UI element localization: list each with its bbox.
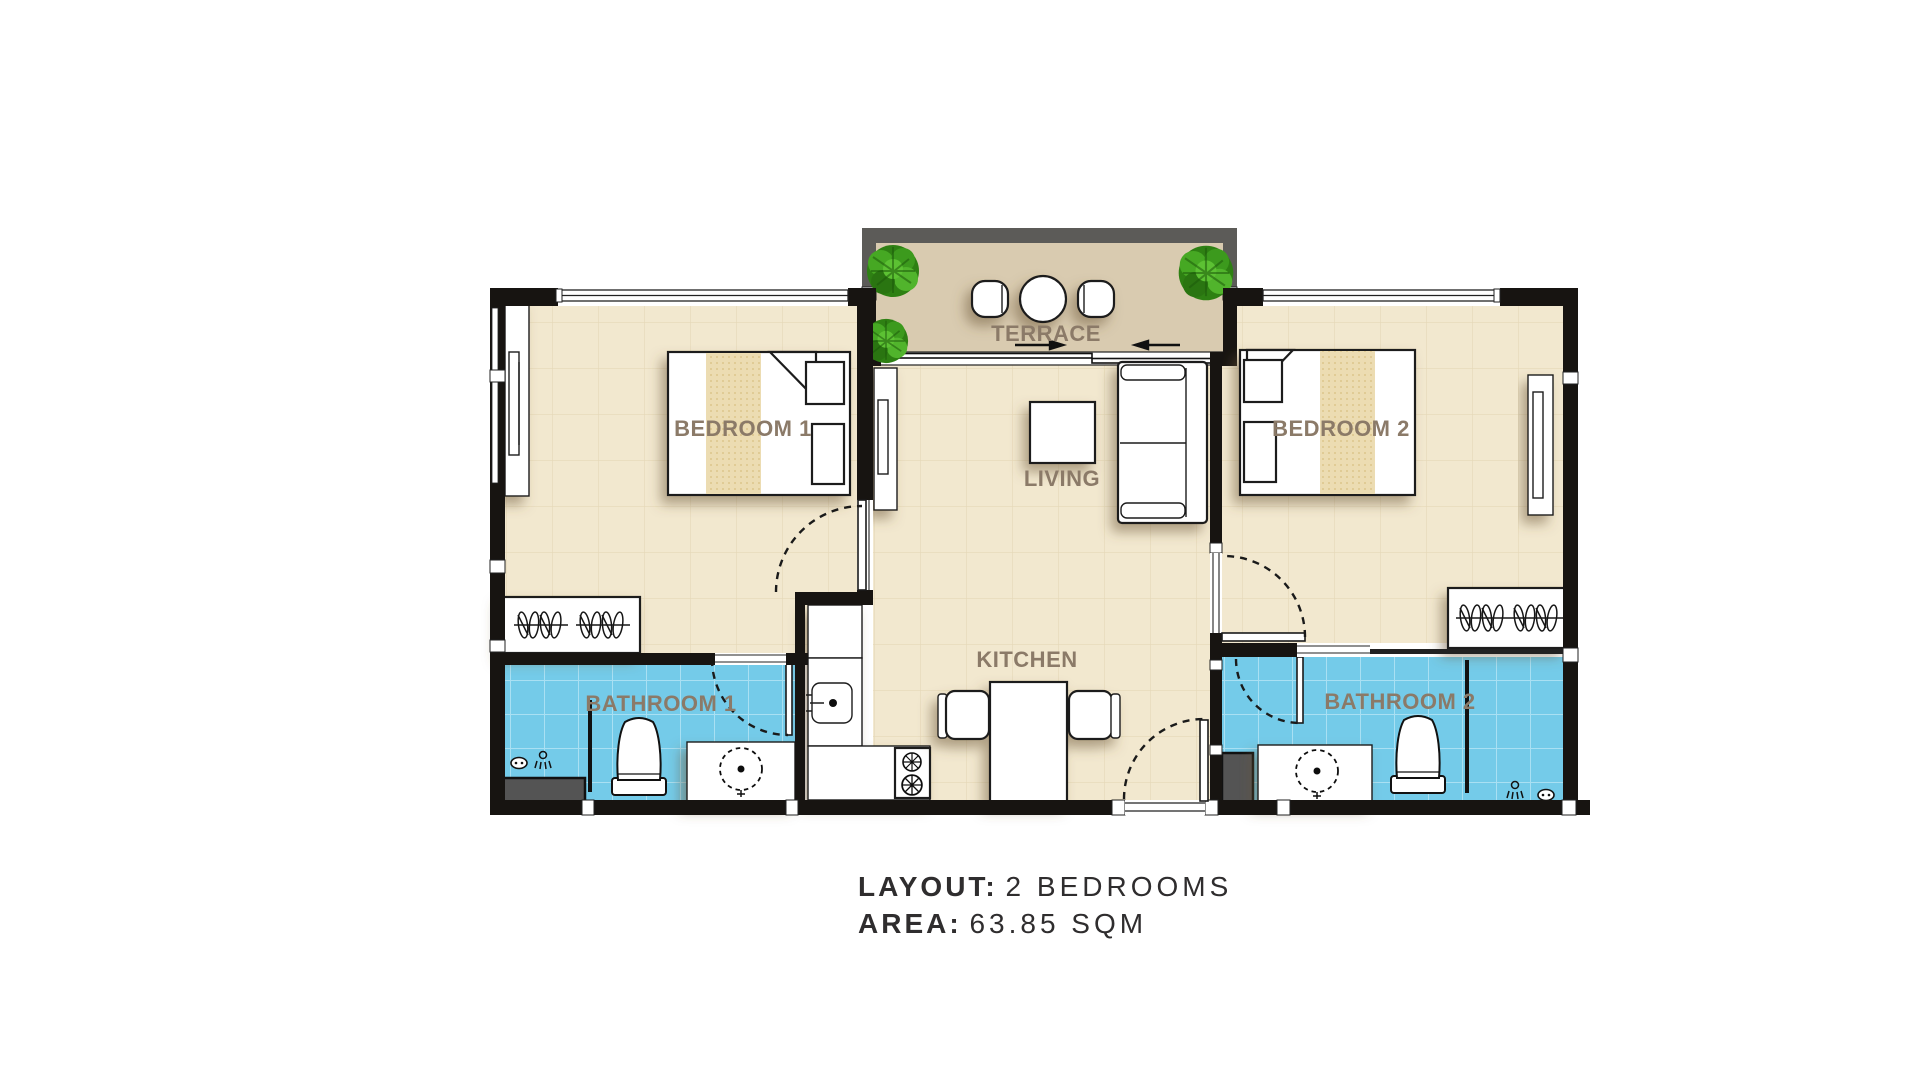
label-terrace: TERRACE [991, 321, 1101, 346]
label-living: LIVING [1024, 466, 1100, 491]
entry-door [1200, 720, 1208, 801]
bedroom2-door [1222, 633, 1305, 641]
window-bedroom1 [556, 289, 848, 302]
layout-value: 2 BEDROOMS [1006, 871, 1233, 902]
dining-table [990, 682, 1067, 802]
tv-console-bedroom1 [505, 300, 529, 496]
label-kitchen: KITCHEN [976, 647, 1077, 672]
vanity-2 [1258, 745, 1372, 803]
layout-label: LAYOUT: [858, 871, 998, 902]
floor-plan-page: TERRACE BEDROOM 1 BEDROOM 2 LIVING KITCH… [0, 0, 1920, 1080]
area-label: AREA: [858, 908, 962, 939]
utility-shaft-2 [1222, 753, 1253, 803]
tv-console-living [874, 368, 897, 510]
sofa [1118, 362, 1207, 523]
dining-chair-right [1069, 691, 1112, 739]
vanity-1 [687, 742, 795, 803]
wardrobe-2 [1448, 588, 1565, 648]
tv-console-bedroom2 [1528, 375, 1553, 515]
bathroom2-door [1297, 657, 1303, 723]
dining-chair-left [946, 691, 989, 739]
caption-area-line: AREA: 63.85 SQM [858, 905, 1232, 942]
area-value: 63.85 SQM [969, 908, 1147, 939]
window-left-wall [492, 308, 498, 483]
label-bathroom1: BATHROOM 1 [585, 691, 736, 716]
terrace-table [1020, 276, 1066, 322]
caption-layout-line: LAYOUT: 2 BEDROOMS [858, 868, 1232, 905]
label-bathroom2: BATHROOM 2 [1324, 689, 1475, 714]
drain-icon [511, 758, 527, 769]
label-bedroom1: BEDROOM 1 [674, 416, 812, 441]
wardrobe-1 [503, 597, 640, 653]
bedroom1-door [858, 500, 866, 590]
utility-shaft-1 [500, 778, 585, 803]
window-bedroom2 [1263, 289, 1500, 302]
label-bedroom2: BEDROOM 2 [1272, 416, 1410, 441]
drain-icon [1538, 790, 1554, 801]
bathroom1-door [786, 657, 792, 735]
coffee-table [1030, 402, 1095, 463]
terrace-wall-top [862, 228, 1237, 243]
terrace-furniture [972, 276, 1114, 322]
caption: LAYOUT: 2 BEDROOMS AREA: 63.85 SQM [858, 868, 1232, 942]
